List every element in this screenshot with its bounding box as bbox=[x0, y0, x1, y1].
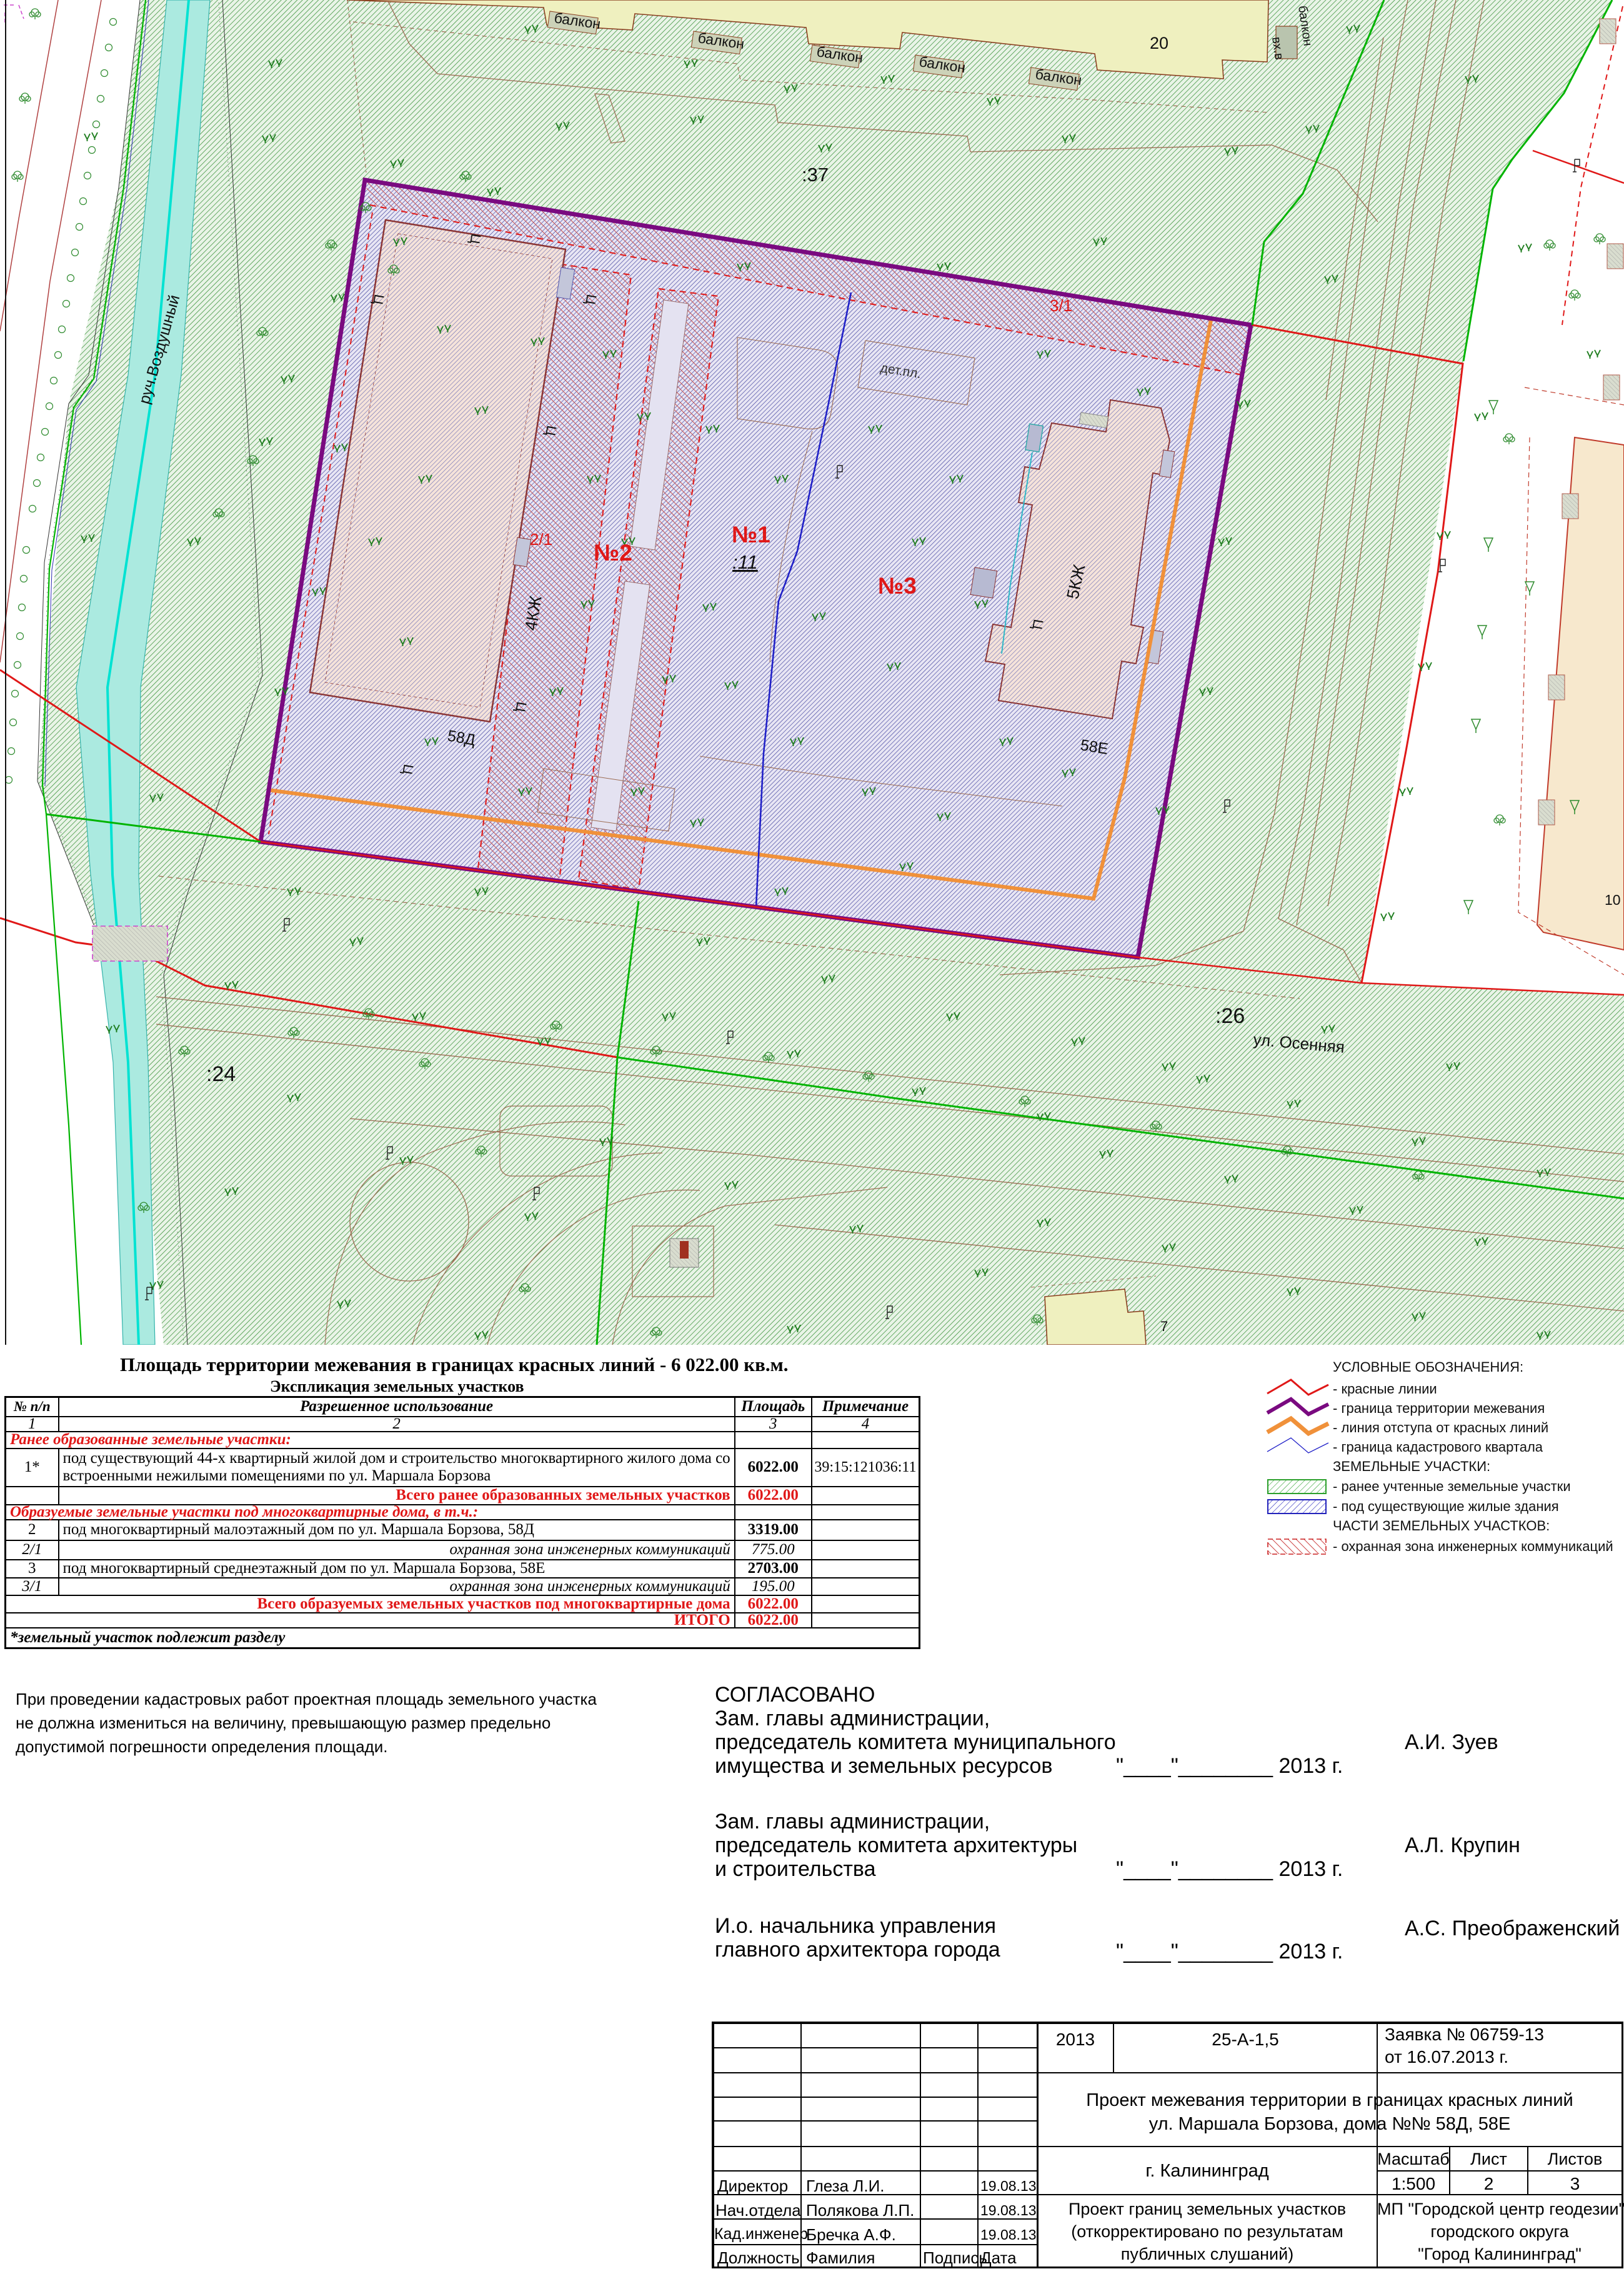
svg-text::24: :24 bbox=[206, 1062, 236, 1086]
svg-text:№1: №1 bbox=[732, 522, 770, 547]
svg-text:№2: №2 bbox=[594, 540, 632, 566]
svg-text:ЗЕМЕЛЬНЫЕ УЧАСТКИ:: ЗЕМЕЛЬНЫЕ УЧАСТКИ: bbox=[1333, 1459, 1490, 1474]
svg-text:- охранная зона инженерных ком: - охранная зона инженерных коммуникаций bbox=[1333, 1538, 1613, 1554]
svg-text:- граница кадастрового квартал: - граница кадастрового квартала bbox=[1333, 1439, 1543, 1455]
svg-text::11: :11 bbox=[732, 551, 758, 573]
svg-text:2/1: 2/1 bbox=[530, 530, 552, 549]
svg-text:7: 7 bbox=[1160, 1319, 1168, 1334]
svg-text:ЧАСТИ ЗЕМЕЛЬНЫХ УЧАСТКОВ:: ЧАСТИ ЗЕМЕЛЬНЫХ УЧАСТКОВ: bbox=[1333, 1518, 1550, 1533]
svg-text:10: 10 bbox=[1605, 892, 1621, 908]
svg-text:20: 20 bbox=[1150, 34, 1168, 52]
svg-text::26: :26 bbox=[1215, 1004, 1245, 1028]
svg-text:- под существующие жилые здани: - под существующие жилые здания bbox=[1333, 1499, 1559, 1514]
svg-text::37: :37 bbox=[802, 164, 829, 186]
svg-text:УСЛОВНЫЕ ОБОЗНАЧЕНИЯ:: УСЛОВНЫЕ ОБОЗНАЧЕНИЯ: bbox=[1333, 1359, 1523, 1375]
svg-text:- ранее учтенные земельные уча: - ранее учтенные земельные участки bbox=[1333, 1479, 1571, 1494]
svg-text:3/1: 3/1 bbox=[1050, 296, 1072, 315]
svg-text:- граница территории межевания: - граница территории межевания bbox=[1333, 1400, 1545, 1416]
svg-text:- линия отступа от красных лин: - линия отступа от красных линий bbox=[1333, 1420, 1548, 1435]
svg-text:№3: №3 bbox=[878, 573, 917, 599]
svg-text:- красные линии: - красные линии bbox=[1333, 1381, 1437, 1397]
